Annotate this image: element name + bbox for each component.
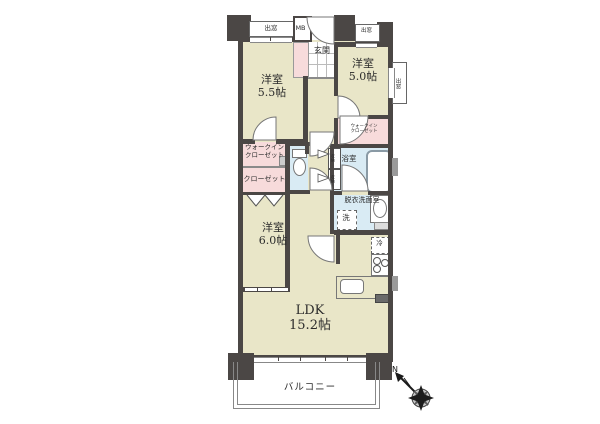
room55-name: 洋室 [261,73,283,86]
wic-left-label: ウォークイン クローゼット [243,144,286,159]
compass-north-label: N [392,365,398,374]
storage-label-2: 収納 [330,171,335,187]
compass-icon: N [392,365,434,411]
ldk-name: LDK [296,303,325,318]
room60-size: 6.0帖 [259,234,288,247]
washroom-label: 脱衣洗面室 [334,196,390,204]
floorplan-canvas: N 洋室 5.5帖 洋室 5.0帖 洋室 6.0帖 LDK 15.2帖 ウォーク… [0,0,600,424]
washing-machine-label: 洗 [337,214,355,223]
room50-label: 洋室 5.0帖 [338,58,388,84]
ldk-label: LDK 15.2帖 [270,303,350,334]
bay-window-label-right: 出窓 [394,68,400,98]
room60-name: 洋室 [262,221,284,234]
bathroom-door-arc [342,165,368,191]
entrance-label: 玄関 [308,46,336,55]
wic-right-label: ウォークイン クローゼット [340,124,388,135]
ldk-door-arc [308,236,334,262]
ldk-size: 15.2帖 [289,318,331,333]
bathroom-label: 浴室 [336,155,362,164]
entrance-door-arc [307,17,334,44]
room50-size: 5.0帖 [349,70,378,83]
doors-and-compass-overlay: N [0,0,600,424]
bay-window-label-top-right: 出窓 [355,28,378,34]
room55-label: 洋室 5.5帖 [240,74,304,100]
room50-name: 洋室 [352,57,374,70]
room55-size: 5.5帖 [258,86,287,99]
room55-door-arc [253,117,276,140]
wic-left-line2: クローゼット [245,151,284,159]
wic-right-line2: クローゼット [351,129,378,134]
room50-door-arc [338,96,360,118]
closet-folding-doors [247,195,283,206]
room60-label: 洋室 6.0帖 [240,222,306,248]
storage-label-1: 収納 [330,150,335,166]
balcony-label: バルコニー [265,382,355,393]
bay-window-label-top-left: 出窓 [249,25,293,33]
meter-box-label: MB [293,25,308,33]
closet-label: クローゼット [243,175,286,183]
refrigerator-label: 冷 [371,240,388,248]
